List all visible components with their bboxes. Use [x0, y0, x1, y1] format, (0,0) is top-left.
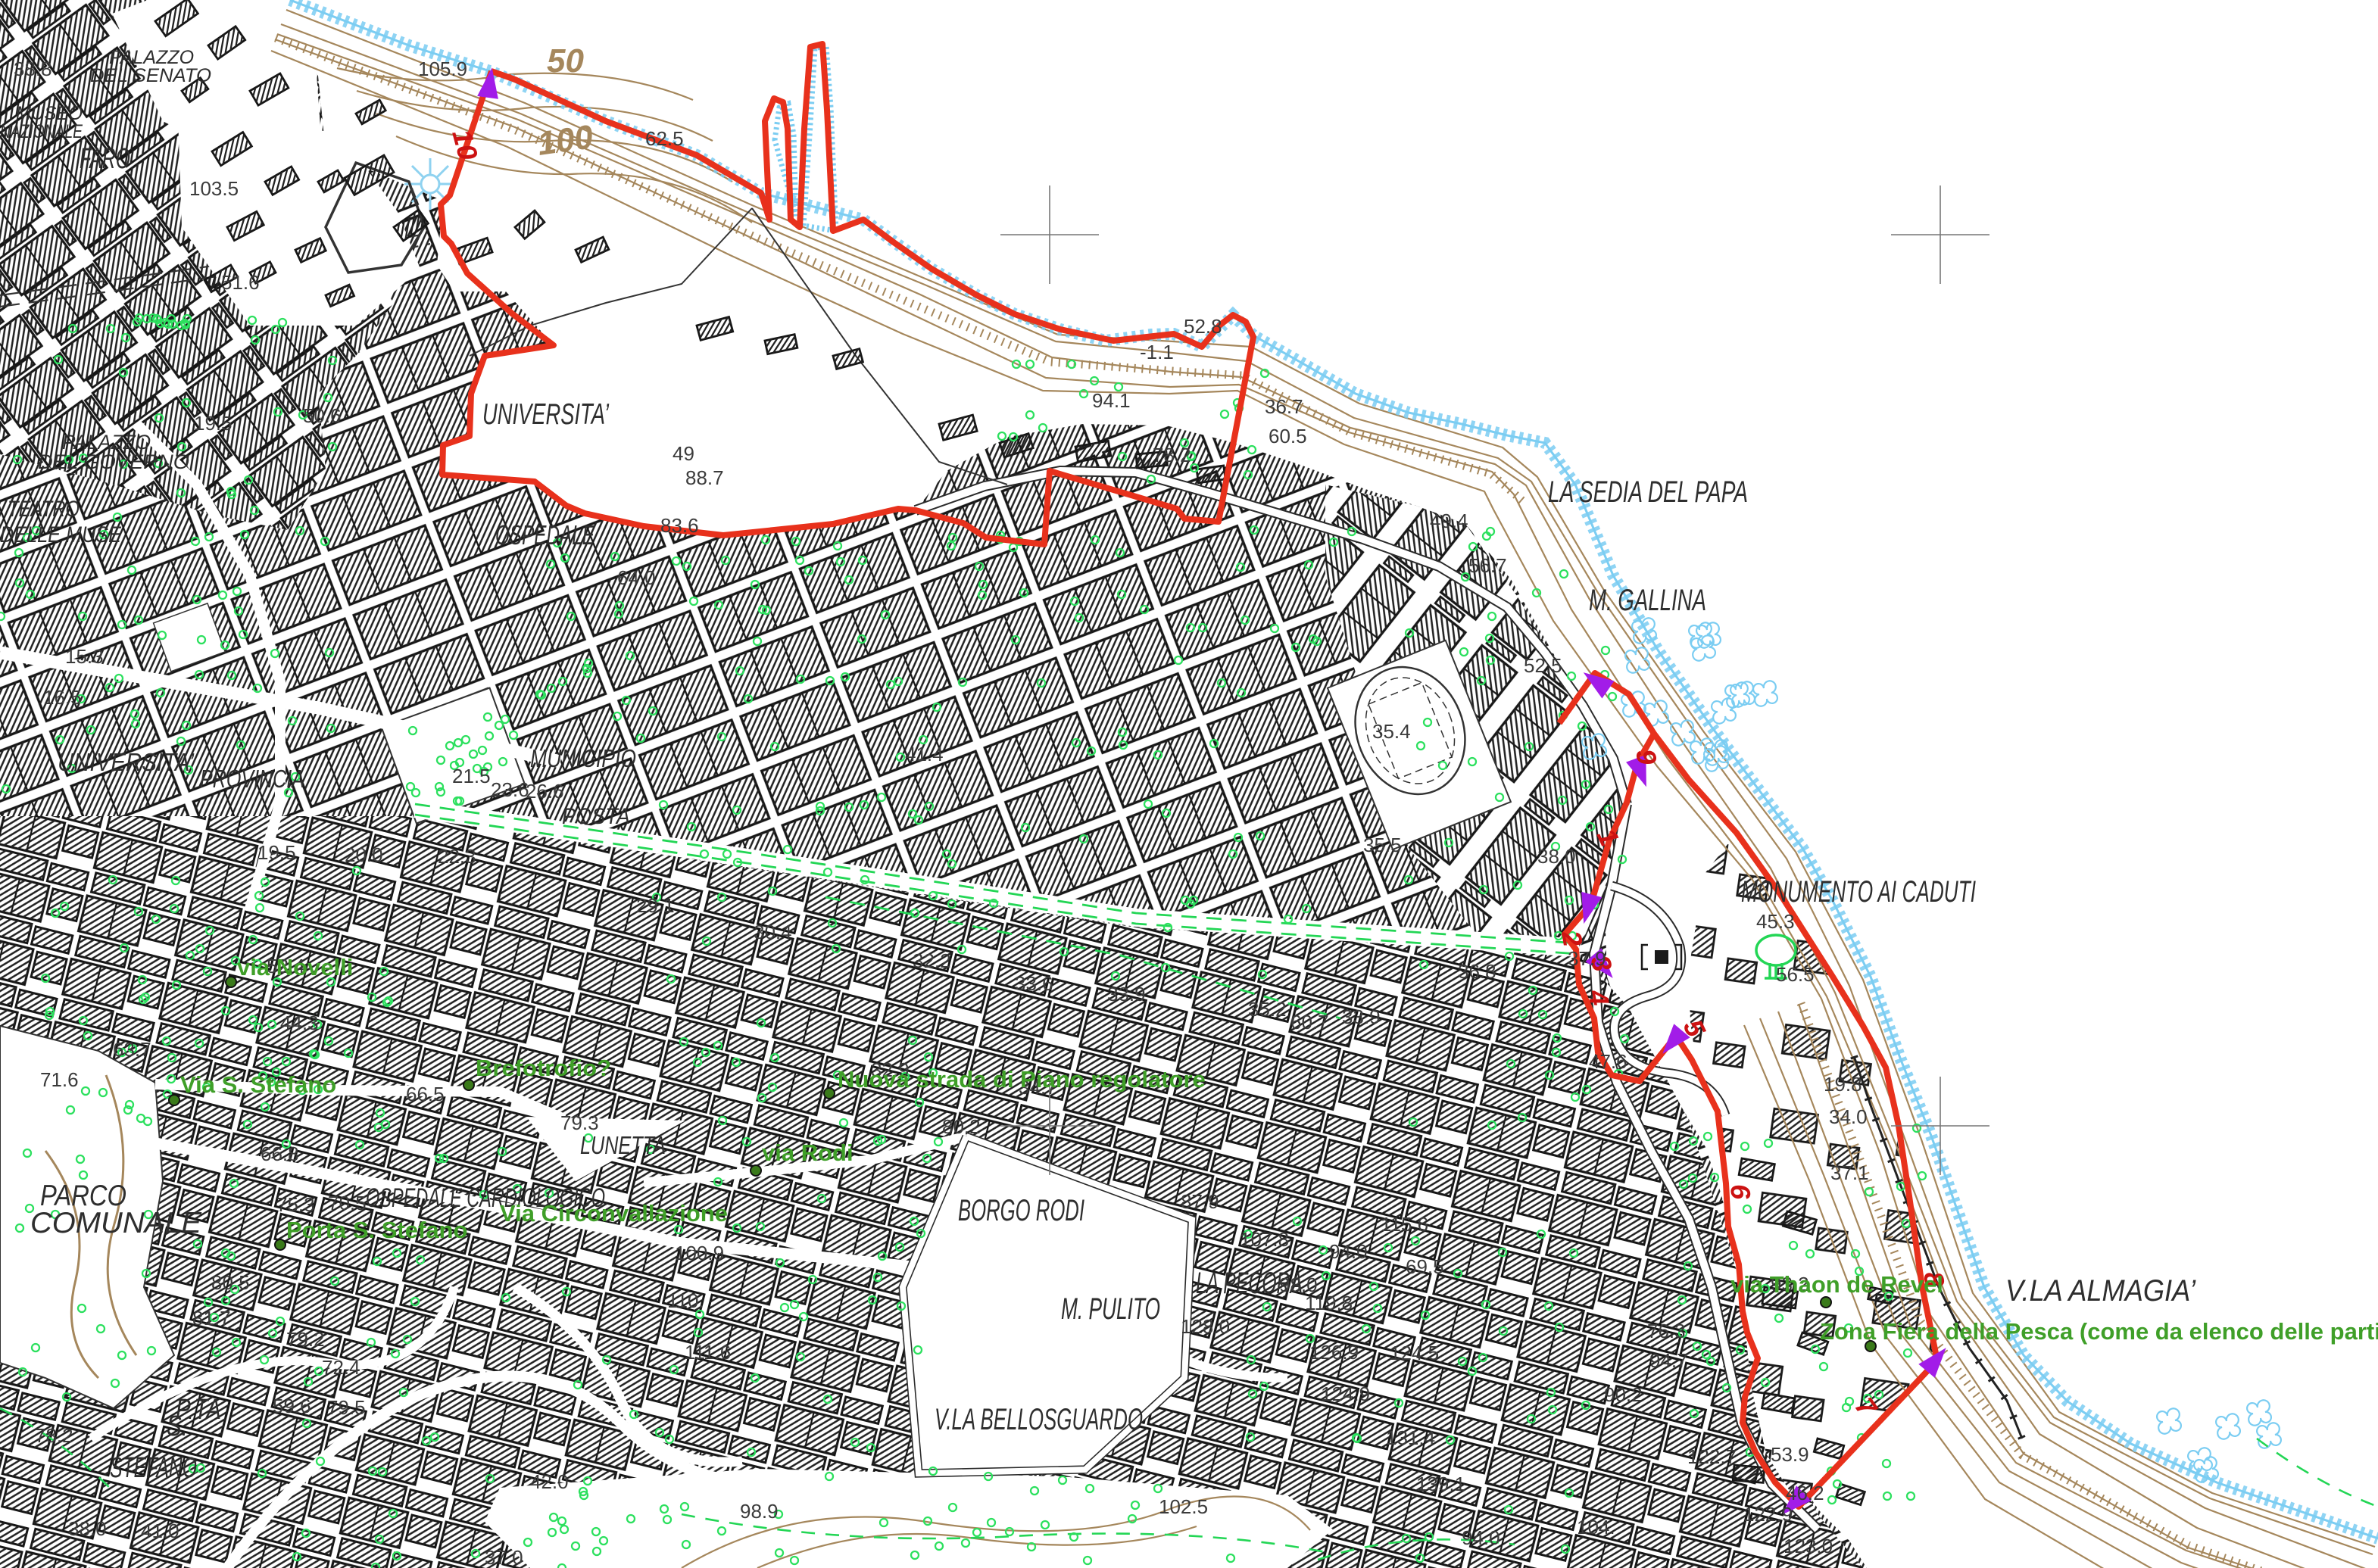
svg-text:M. PULITO: M. PULITO [1061, 1292, 1160, 1326]
svg-text:124.9: 124.9 [1321, 1383, 1370, 1405]
svg-text:78.2: 78.2 [35, 1424, 73, 1447]
svg-text:62.5: 62.5 [645, 127, 684, 150]
svg-text:80.5: 80.5 [211, 1271, 250, 1294]
svg-text:26.6: 26.6 [526, 780, 564, 803]
svg-text:72.4: 72.4 [322, 1356, 360, 1379]
svg-text:V.LA BELLOSGUARDO: V.LA BELLOSGUARDO [935, 1403, 1143, 1436]
svg-text:Via S. Stefano: Via S. Stefano [180, 1071, 336, 1098]
svg-text:21.5: 21.5 [452, 765, 491, 787]
svg-text:35.5: 35.5 [1363, 834, 1402, 856]
svg-text:COMUNALE: COMUNALE [30, 1207, 202, 1239]
svg-text:110.: 110. [667, 1289, 704, 1312]
svg-text:STEFANO: STEFANO [110, 1452, 197, 1484]
svg-text:DELLE MUSE: DELLE MUSE [0, 522, 122, 547]
svg-text:50: 50 [547, 42, 584, 79]
svg-text:19.8: 19.8 [1824, 1073, 1862, 1096]
svg-text:47.6: 47.6 [1589, 1050, 1627, 1073]
svg-text:M. GALLINA: M. GALLINA [1589, 584, 1706, 617]
svg-text:56.5: 56.5 [1776, 963, 1815, 986]
svg-text:42.0: 42.0 [530, 1470, 569, 1493]
svg-text:78.2: 78.2 [1153, 444, 1191, 466]
svg-text:20.0: 20.0 [345, 843, 383, 866]
svg-text:60.7: 60.7 [1290, 1011, 1329, 1033]
svg-text:MONUMENTO AI CADUTI: MONUMENTO AI CADUTI [1741, 875, 1976, 909]
svg-text:52.5: 52.5 [1524, 654, 1562, 677]
svg-text:38.8: 38.8 [14, 58, 52, 80]
svg-text:S.: S. [167, 1411, 188, 1442]
svg-text:LUNETTA: LUNETTA [580, 1131, 666, 1159]
svg-text:UNIVERSITA’: UNIVERSITA’ [58, 748, 195, 776]
svg-text:29.1: 29.1 [636, 894, 675, 917]
svg-text:122.9: 122.9 [1743, 1503, 1793, 1526]
svg-text:33.6: 33.6 [1015, 972, 1053, 995]
svg-text:38.0: 38.0 [1537, 845, 1576, 868]
svg-text:OSPEDALE: OSPEDALE [495, 519, 595, 550]
svg-text:Nuova strada di Piano regolato: Nuova strada di Piano regolatore [838, 1066, 1206, 1093]
svg-text:22.3: 22.3 [438, 845, 476, 868]
svg-text:123.0: 123.0 [1784, 1535, 1833, 1557]
svg-text:44.3: 44.3 [280, 1012, 319, 1034]
svg-text:79.2: 79.2 [286, 1328, 325, 1351]
svg-text:NAZIONALE: NAZIONALE [0, 121, 83, 142]
svg-text:119.8: 119.8 [1305, 1292, 1353, 1314]
svg-text:94.1: 94.1 [1092, 389, 1131, 412]
svg-text:80.2: 80.2 [942, 1115, 981, 1138]
svg-text:TEATRO: TEATRO [8, 497, 80, 522]
svg-text:49: 49 [673, 442, 694, 465]
svg-text:105.9: 105.9 [418, 58, 467, 80]
svg-text:81.7: 81.7 [192, 1307, 231, 1330]
svg-text:75.3: 75.3 [276, 1193, 315, 1216]
svg-text:94.0: 94.0 [1462, 1526, 1500, 1549]
svg-text:UNIVERSITA’: UNIVERSITA’ [482, 398, 610, 431]
svg-text:19.5: 19.5 [194, 412, 232, 435]
svg-text:BORGO RODI: BORGO RODI [958, 1194, 1084, 1227]
svg-text:66.5: 66.5 [406, 1083, 445, 1105]
svg-text:MUNICIPIO: MUNICIPIO [530, 744, 636, 772]
svg-text:66.8: 66.8 [261, 1142, 299, 1165]
svg-text:53.9: 53.9 [1771, 1443, 1809, 1466]
svg-text:52.8: 52.8 [1184, 315, 1222, 338]
svg-text:50.6: 50.6 [303, 404, 342, 427]
svg-text:38.0: 38.0 [68, 1517, 107, 1540]
svg-text:-1.1: -1.1 [1140, 341, 1174, 363]
svg-text:Porta S. Stefano: Porta S. Stefano [286, 1217, 467, 1243]
svg-text:128.0: 128.0 [1181, 1315, 1230, 1338]
svg-text:94.0: 94.0 [1329, 1240, 1368, 1263]
svg-text:100: 100 [535, 118, 596, 163]
svg-text:49.4: 49.4 [1430, 510, 1468, 532]
svg-text:63.7: 63.7 [113, 1038, 151, 1061]
svg-text:76.3: 76.3 [1647, 1320, 1686, 1342]
svg-text:DEL GOVERNO: DEL GOVERNO [38, 450, 189, 473]
svg-text:111.6: 111.6 [685, 1341, 731, 1364]
svg-text:19.5: 19.5 [257, 841, 296, 864]
svg-text:POSTA: POSTA [562, 804, 630, 829]
svg-text:34.0: 34.0 [1829, 1105, 1868, 1128]
svg-text:FARO: FARO [80, 143, 130, 175]
svg-text:71.6: 71.6 [40, 1068, 79, 1091]
svg-text:via Rodi: via Rodi [762, 1139, 854, 1166]
svg-text:37.1: 37.1 [1830, 1161, 1869, 1184]
svg-text:32.2: 32.2 [913, 949, 951, 972]
svg-text:via Novelli: via Novelli [237, 954, 353, 980]
svg-text:87.9: 87.9 [1181, 1190, 1219, 1213]
svg-text:46.2: 46.2 [1786, 1482, 1824, 1504]
svg-text:88.7: 88.7 [685, 466, 724, 489]
svg-text:100.9: 100.9 [675, 1242, 724, 1264]
svg-text:56.7: 56.7 [1468, 554, 1507, 577]
svg-text:41.0: 41.0 [141, 1520, 179, 1542]
svg-text:107.8: 107.8 [1240, 1228, 1289, 1251]
svg-text:122.7: 122.7 [1687, 1445, 1737, 1468]
svg-text:79.3: 79.3 [560, 1111, 599, 1134]
svg-text:41.4: 41.4 [905, 743, 944, 765]
svg-text:Zona Fiera della Pesca (come d: Zona Fiera della Pesca (come da elenco d… [1820, 1318, 2378, 1345]
svg-text:V.LA ALMAGIA’: V.LA ALMAGIA’ [2005, 1274, 2196, 1308]
svg-text:35.2: 35.2 [1248, 998, 1287, 1021]
svg-text:33.9: 33.9 [1342, 1005, 1381, 1028]
svg-text:15.3: 15.3 [65, 645, 104, 668]
svg-text:Via Circonvallazione: Via Circonvallazione [500, 1200, 728, 1227]
svg-text:124.5: 124.5 [1390, 1342, 1439, 1364]
svg-text:via Thaon de Revel: via Thaon de Revel [1730, 1271, 1943, 1298]
svg-text:PROVINCIA: PROVINCIA [200, 765, 304, 793]
svg-text:33.9: 33.9 [1107, 983, 1146, 1005]
svg-text:90.2: 90.2 [1604, 1383, 1643, 1406]
svg-text:98.9: 98.9 [740, 1500, 779, 1523]
svg-text:115.6: 115.6 [1381, 1213, 1428, 1236]
svg-text:104.: 104. [1577, 1516, 1615, 1538]
svg-text:60.5: 60.5 [1269, 425, 1307, 447]
svg-text:126.9: 126.9 [1309, 1341, 1359, 1364]
svg-text:51.6: 51.6 [221, 271, 260, 294]
svg-text:64.0: 64.0 [617, 566, 656, 589]
svg-text:16.5: 16.5 [43, 686, 82, 709]
svg-text:DEL SENATO: DEL SENATO [90, 65, 211, 86]
svg-text:94.7: 94.7 [1649, 1349, 1688, 1372]
svg-text:45.3: 45.3 [1756, 910, 1795, 933]
svg-text:LA SEDIA DEL PAPA: LA SEDIA DEL PAPA [1548, 475, 1748, 509]
svg-text:30.4: 30.4 [754, 921, 792, 943]
svg-text:131.4: 131.4 [1386, 1426, 1435, 1449]
svg-text:70.5: 70.5 [328, 1192, 367, 1214]
svg-text:37.9: 37.9 [1568, 947, 1606, 970]
svg-text:Brefotrofio?: Brefotrofio? [476, 1055, 611, 1081]
svg-text:35.4: 35.4 [1372, 720, 1411, 743]
svg-text:36.8: 36.8 [1458, 960, 1496, 983]
svg-text:23.6: 23.6 [491, 778, 529, 801]
svg-text:83.6: 83.6 [660, 514, 699, 537]
svg-text:139.1: 139.1 [1416, 1473, 1465, 1495]
svg-text:36.7: 36.7 [1265, 395, 1303, 418]
svg-text:102.5: 102.5 [1159, 1495, 1208, 1518]
svg-text:59.6: 59.6 [273, 1395, 311, 1417]
svg-text:37.0: 37.0 [485, 1546, 523, 1568]
svg-text:69.5: 69.5 [1406, 1255, 1444, 1278]
svg-text:103.5: 103.5 [189, 177, 239, 200]
svg-text:79.5: 79.5 [327, 1396, 366, 1419]
